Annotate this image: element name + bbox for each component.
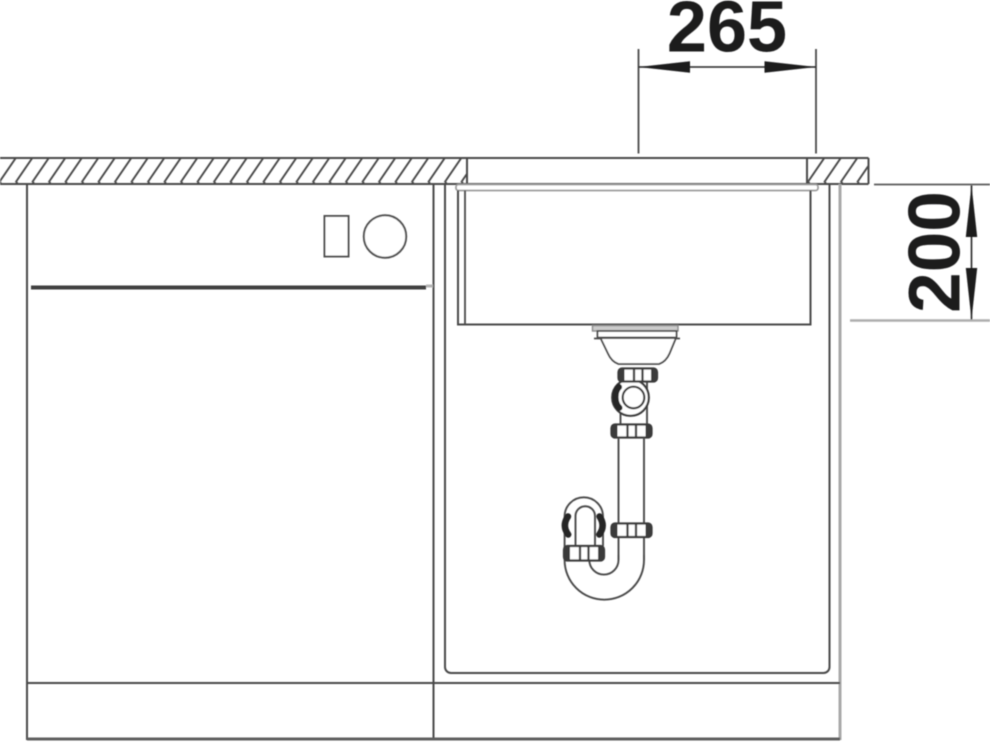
svg-text:265: 265 xyxy=(667,0,787,68)
svg-text:200: 200 xyxy=(895,191,976,313)
